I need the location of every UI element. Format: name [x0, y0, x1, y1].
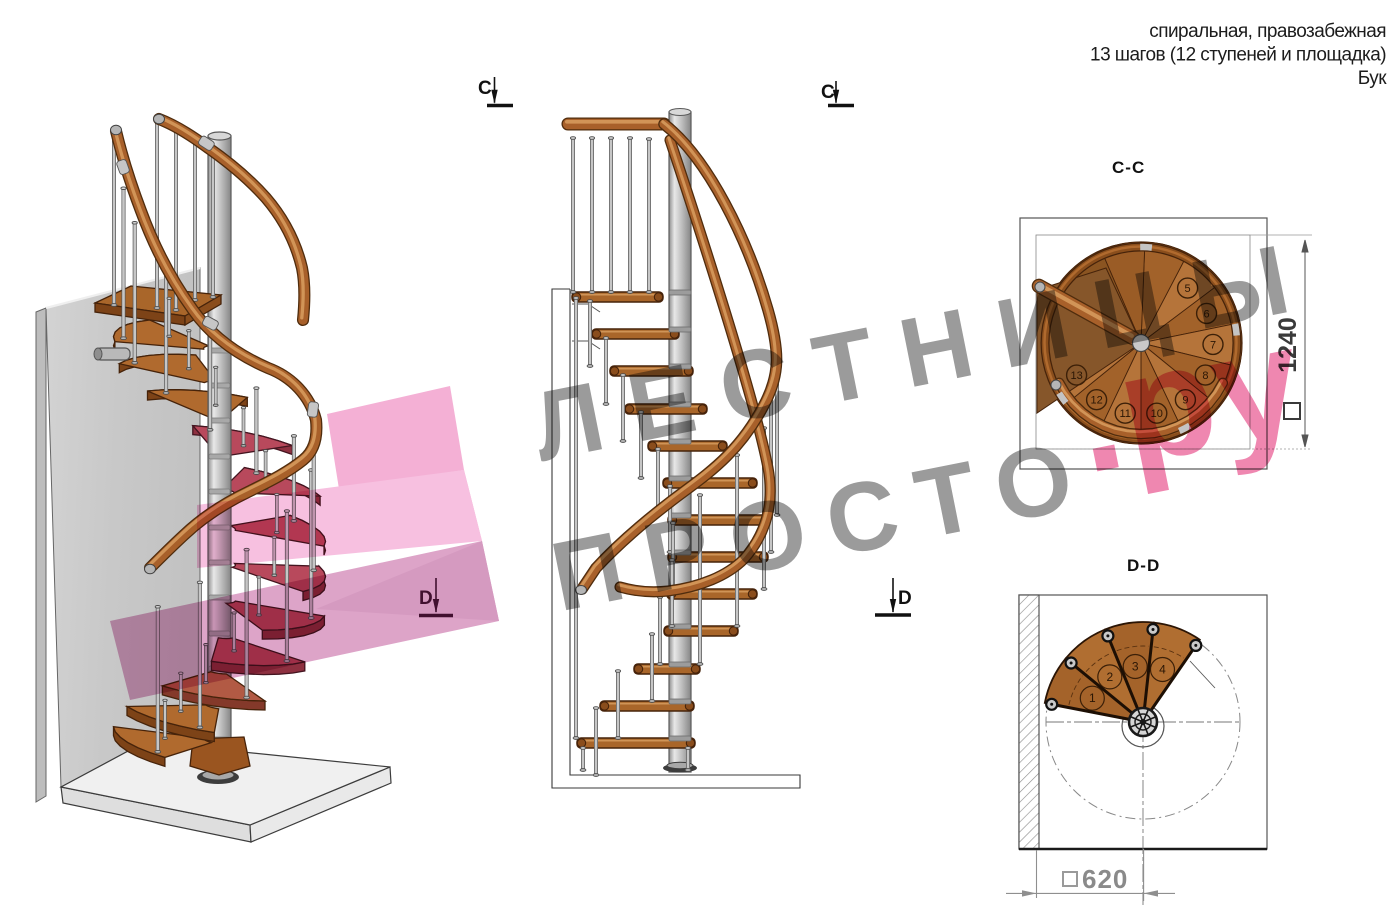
svg-text:C: C — [478, 78, 492, 99]
svg-text:13 шагов (12 ступеней и площад: 13 шагов (12 ступеней и площадка) — [1090, 45, 1386, 66]
svg-text:4: 4 — [1159, 663, 1166, 677]
svg-text:D: D — [419, 588, 433, 609]
svg-text:C: C — [821, 82, 835, 103]
svg-text:D-D: D-D — [1127, 556, 1160, 575]
svg-text:620: 620 — [1082, 864, 1128, 894]
svg-text:D: D — [898, 588, 912, 609]
svg-text:1: 1 — [1089, 691, 1096, 705]
svg-text:2: 2 — [1106, 670, 1113, 684]
svg-text:Бук: Бук — [1358, 68, 1387, 89]
svg-text:3: 3 — [1132, 660, 1139, 674]
svg-text:спиральная, правозабежная: спиральная, правозабежная — [1149, 21, 1386, 42]
svg-text:C-C: C-C — [1112, 158, 1145, 177]
